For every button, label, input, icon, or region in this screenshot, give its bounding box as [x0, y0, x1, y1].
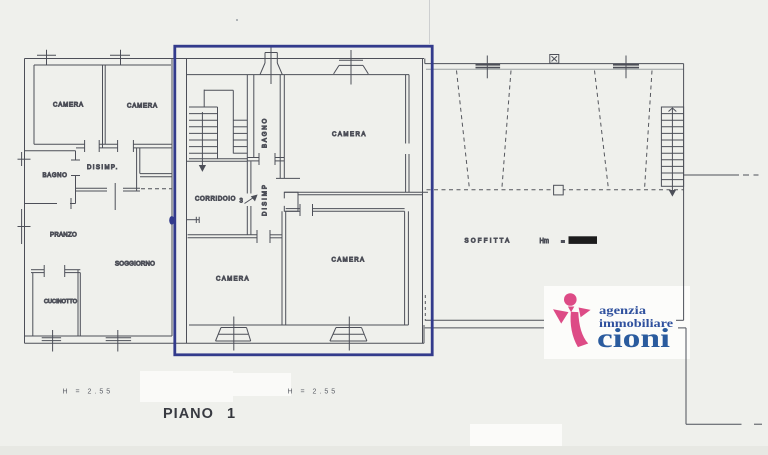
- svg-text:cioni: cioni: [597, 323, 671, 353]
- svg-text:Hm: Hm: [540, 238, 550, 245]
- svg-text:H = 2.55: H = 2.55: [288, 389, 339, 396]
- svg-text:CORRIDOIO: CORRIDOIO: [195, 196, 236, 203]
- svg-text:=: =: [561, 239, 565, 246]
- svg-text:CAMERA: CAMERA: [127, 103, 158, 110]
- svg-text:DISIMP: DISIMP: [262, 183, 269, 216]
- svg-text:1: 1: [227, 406, 235, 422]
- svg-text:agenzia: agenzia: [599, 303, 646, 317]
- svg-text:PRANZO: PRANZO: [50, 232, 77, 239]
- svg-text:BAGNO: BAGNO: [262, 117, 269, 148]
- svg-text:CAMERA: CAMERA: [216, 276, 250, 283]
- svg-text:SOGGIORNO: SOGGIORNO: [115, 261, 155, 268]
- svg-text:CAMERA: CAMERA: [332, 131, 367, 138]
- svg-text:SOFFITTA: SOFFITTA: [465, 238, 512, 245]
- svg-text:CAMERA: CAMERA: [332, 257, 366, 264]
- svg-text:H = 2.55: H = 2.55: [63, 389, 114, 396]
- svg-text:PIANO: PIANO: [163, 406, 214, 422]
- svg-text:CAMERA: CAMERA: [53, 102, 84, 109]
- svg-text:CUCINOTTO: CUCINOTTO: [44, 299, 78, 305]
- svg-text:DISIMP.: DISIMP.: [87, 164, 119, 171]
- svg-text:BAGNO: BAGNO: [43, 172, 68, 179]
